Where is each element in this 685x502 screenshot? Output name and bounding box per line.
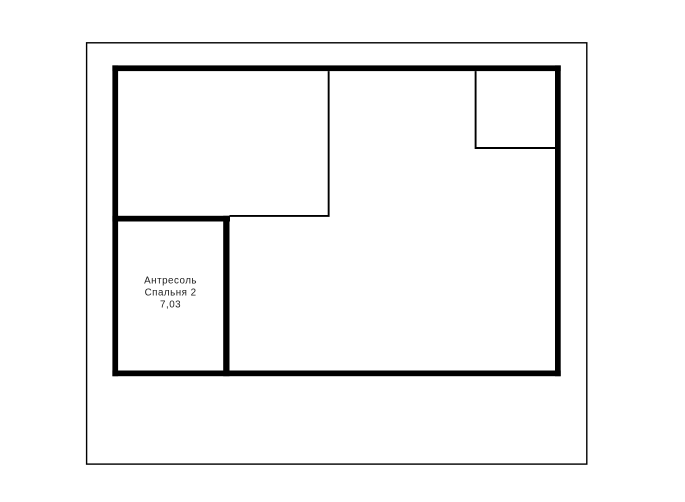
svg-text:7,03: 7,03 bbox=[160, 299, 181, 310]
svg-text:Спальня 2: Спальня 2 bbox=[145, 287, 197, 298]
svg-text:Антресоль: Антресоль bbox=[144, 275, 197, 286]
